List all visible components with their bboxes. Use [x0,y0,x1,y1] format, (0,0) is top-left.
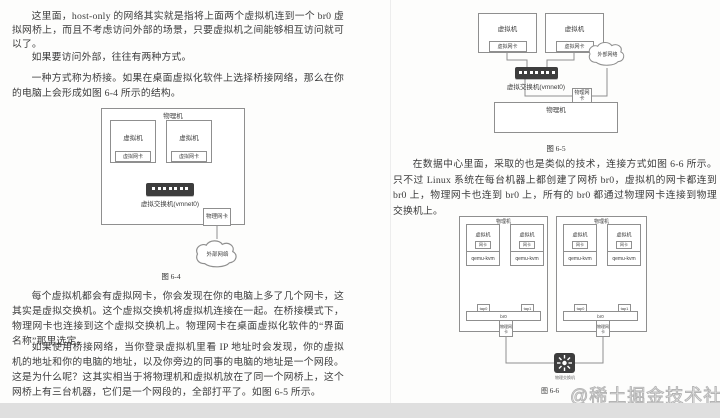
external-network-label: 外部网络 [190,238,245,270]
vm-box: 虚拟机 虚拟网卡 [166,120,212,163]
paragraph-two-ways: 如果要访问外部，往往有两种方式。 [12,50,344,65]
external-network-cloud: 外部网络 [585,40,630,68]
vm-box: 虚拟机 网卡 [510,224,544,252]
nic-box: 网卡 [519,241,535,249]
nic-box: 网卡 [475,241,491,249]
physical-machine-box: 物理机 [494,102,618,133]
figure-6-6: 物理机 物理机 虚拟机 网卡 qemu-kvm 虚拟机 网卡 qemu-kvm … [450,214,675,399]
vm-box: 虚拟机 网卡 [563,224,597,252]
figure-6-4-caption: 图 6-4 [151,271,191,282]
vm-label: 虚拟机 [467,231,499,238]
vm-box: 虚拟机 网卡 [466,224,500,252]
physical-nic-box: 物理网卡 [203,208,231,226]
vm-box: 虚拟机 虚拟网卡 [110,120,156,163]
external-network-label: 外部网络 [585,40,630,68]
vm-stack: 虚拟机 网卡 qemu-kvm [466,224,500,266]
qemu-kvm-box: qemu-kvm [563,251,597,266]
nic-box: 网卡 [572,241,588,249]
external-network-cloud: 外部网络 [190,238,245,270]
figure-6-6-caption: 图 6-6 [528,386,572,396]
virtual-switch-icon [515,67,558,79]
qemu-kvm-box: qemu-kvm [607,251,641,266]
vm-label: 虚拟机 [511,231,543,238]
physical-nic-box: 物理网卡 [499,320,513,337]
vm-box: 虚拟机 虚拟网卡 [478,13,537,53]
vm-label: 虚拟机 [564,231,596,238]
figure-6-5: 虚拟机 虚拟网卡 虚拟机 虚拟网卡 虚拟交换机(vmnet0) 外部网络 物理网… [440,8,685,158]
vm-stack: 虚拟机 网卡 qemu-kvm [510,224,544,266]
physical-nic-box: 物理网卡 [596,320,610,337]
vm-label: 虚拟机 [479,23,536,33]
physical-switch-icon [554,353,575,373]
figure-6-4: 物理机 虚拟机 虚拟网卡 虚拟机 虚拟网卡 虚拟交换机(vmnet0) 物理网卡… [60,100,320,285]
virtual-nic-box: 虚拟网卡 [115,151,151,162]
vm-stack: 虚拟机 网卡 qemu-kvm [607,224,641,266]
virtual-nic-box: 虚拟网卡 [171,151,207,162]
bottom-scan-bar [0,403,720,418]
qemu-kvm-box: qemu-kvm [466,251,500,266]
vm-label: 虚拟机 [167,132,211,142]
vm-label: 虚拟机 [608,231,640,238]
vm-label: 虚拟机 [546,23,603,33]
qemu-kvm-box: qemu-kvm [510,251,544,266]
nic-box: 网卡 [616,241,632,249]
physical-switch-label: 物理交换机 [542,375,588,381]
vm-label: 虚拟机 [111,132,155,142]
paragraph-datacenter-bridge: 在数据中心里面，采取的也是类似的技术，连接方式如图 6-6 所示。只不过 Lin… [393,157,717,219]
paragraph-same-subnet: 如果使用桥接网络，当你登录虚拟机里看 IP 地址时会发现，你的虚拟机的地址和你的… [12,340,344,400]
physical-machine-label: 物理机 [102,110,244,120]
paragraph-bridge-mode: 一种方式称为桥接。如果在桌面虚拟化软件上选择桥接网络，那么在你的电脑上会形成如图… [12,71,344,101]
page-gutter [390,0,391,403]
virtual-switch-icon [146,183,194,196]
paragraph-hostonly-intro: 这里面，host-only 的网络其实就是指将上面两个虚拟机连到一个 br0 虚… [12,10,344,52]
virtual-switch-label: 虚拟交换机(vmnet0) [96,198,244,208]
figure-6-5-caption: 图 6-5 [496,143,616,154]
virtual-nic-box: 虚拟网卡 [489,41,527,52]
vm-stack: 虚拟机 网卡 qemu-kvm [563,224,597,266]
physical-machine-label: 物理机 [495,104,617,114]
vm-box: 虚拟机 网卡 [607,224,641,252]
